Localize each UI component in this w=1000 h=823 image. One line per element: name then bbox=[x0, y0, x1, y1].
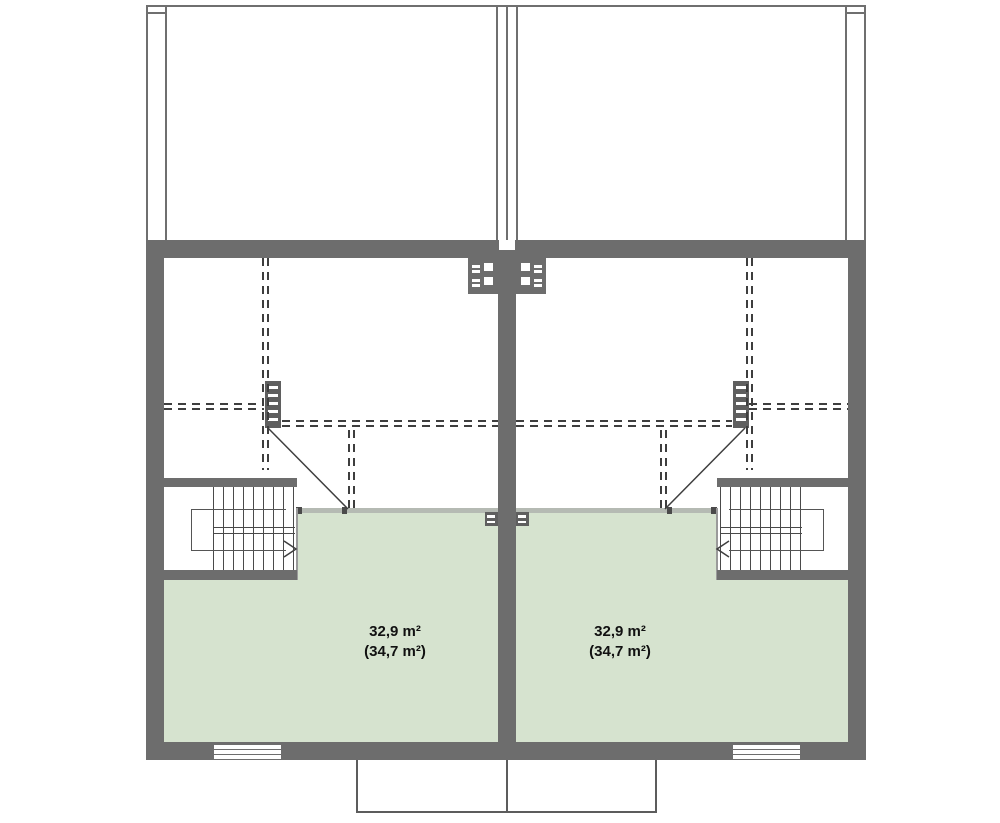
knee-wall-post bbox=[342, 507, 347, 514]
party-wall-line-right bbox=[516, 5, 518, 240]
vent-slat bbox=[736, 418, 746, 421]
window-glazing-line bbox=[733, 754, 800, 756]
chimney-vent-slot bbox=[472, 284, 480, 287]
window-glazing-line bbox=[214, 749, 281, 751]
porch-outline bbox=[356, 756, 657, 813]
party-wall-joint-gap bbox=[499, 240, 515, 250]
floor-area-value-secondary: (34,7 m²) bbox=[295, 642, 495, 662]
floor-area-label-right: 32,9 m² (34,7 m²) bbox=[520, 622, 720, 662]
knee-wall-post bbox=[667, 507, 672, 514]
duct-block-right bbox=[516, 512, 529, 526]
vent-slat bbox=[736, 394, 746, 397]
chimney-left bbox=[468, 258, 498, 294]
vent-slat bbox=[736, 386, 746, 389]
stair-railing-right bbox=[729, 509, 824, 551]
floor-plan-canvas: 32,9 m² (34,7 m²) 32,9 m² (34,7 m²) bbox=[0, 0, 1000, 823]
window-glazing-line bbox=[733, 749, 800, 751]
chimney-vent-slot bbox=[472, 265, 480, 268]
duct-slat bbox=[487, 521, 495, 524]
roof-slope-dash bbox=[164, 408, 264, 410]
porch-divider bbox=[506, 758, 508, 811]
duct-slat bbox=[487, 515, 495, 518]
chimney-flue-opening bbox=[484, 277, 493, 285]
floor-area-value-secondary: (34,7 m²) bbox=[520, 642, 720, 662]
ground-floor-wall-cap-left bbox=[146, 12, 167, 14]
stair-wall-bottom-right bbox=[717, 570, 848, 580]
party-wall-line-left bbox=[496, 5, 498, 240]
ground-floor-outline-right bbox=[864, 5, 866, 240]
chimney-right bbox=[516, 258, 546, 294]
vent-slat bbox=[736, 410, 746, 413]
roof-slope-dash bbox=[749, 403, 848, 405]
chimney-vent-slot bbox=[534, 284, 542, 287]
party-wall-line-center bbox=[506, 5, 508, 240]
ground-floor-outline-left bbox=[146, 5, 148, 240]
knee-wall-left bbox=[297, 508, 498, 513]
floor-area-value: 32,9 m² bbox=[295, 622, 495, 642]
room-left-upper-area bbox=[297, 513, 498, 580]
floor-area-value: 32,9 m² bbox=[520, 622, 720, 642]
chimney-vent-slot bbox=[534, 265, 542, 268]
roof-slope-dash bbox=[353, 430, 355, 509]
chimney-flue-opening bbox=[521, 263, 530, 271]
duct-block-left bbox=[485, 512, 498, 526]
roof-slope-dash bbox=[282, 420, 498, 422]
stair-wall-top-right bbox=[717, 478, 848, 487]
ground-floor-wall-cap-right bbox=[845, 12, 866, 14]
window-left bbox=[213, 744, 282, 760]
roof-slope-dash bbox=[749, 408, 848, 410]
exterior-wall-right bbox=[848, 240, 866, 760]
exterior-wall-left bbox=[146, 240, 164, 760]
roof-slope-dash bbox=[751, 258, 753, 470]
chimney-vent-slot bbox=[472, 270, 480, 273]
roof-slope-dash bbox=[262, 258, 264, 470]
stair-railing-left bbox=[191, 509, 286, 551]
roof-slope-dash bbox=[267, 258, 269, 470]
vent-slat bbox=[268, 410, 278, 413]
vent-slat bbox=[268, 394, 278, 397]
chimney-flue-opening bbox=[521, 277, 530, 285]
duct-slat bbox=[518, 515, 526, 518]
roof-slope-dash bbox=[516, 420, 732, 422]
chimney-flue-opening bbox=[484, 263, 493, 271]
roof-slope-dash bbox=[164, 403, 264, 405]
vent-slat bbox=[736, 402, 746, 405]
roof-slope-dash bbox=[348, 430, 350, 509]
stair-wall-top-left bbox=[164, 478, 297, 487]
stair-wall-bottom-left bbox=[164, 570, 297, 580]
ground-floor-inner-line-left bbox=[165, 5, 167, 240]
roof-slope-dash bbox=[660, 430, 662, 509]
vent-slat bbox=[268, 418, 278, 421]
room-right-upper-area bbox=[516, 513, 717, 580]
roof-slope-dash bbox=[516, 425, 732, 427]
chimney-vent-slot bbox=[472, 279, 480, 282]
vent-slat bbox=[268, 402, 278, 405]
window-glazing-line bbox=[214, 754, 281, 756]
roof-slope-dash bbox=[746, 258, 748, 470]
roof-slope-dash bbox=[665, 430, 667, 509]
roof-slope-dash bbox=[282, 425, 498, 427]
floor-area-label-left: 32,9 m² (34,7 m²) bbox=[295, 622, 495, 662]
vent-slat bbox=[268, 386, 278, 389]
ground-floor-inner-line-right bbox=[845, 5, 847, 240]
duct-slat bbox=[518, 521, 526, 524]
chimney-vent-slot bbox=[534, 279, 542, 282]
party-wall-center bbox=[498, 250, 516, 760]
chimney-vent-slot bbox=[534, 270, 542, 273]
knee-wall-right bbox=[516, 508, 717, 513]
window-right bbox=[732, 744, 801, 760]
